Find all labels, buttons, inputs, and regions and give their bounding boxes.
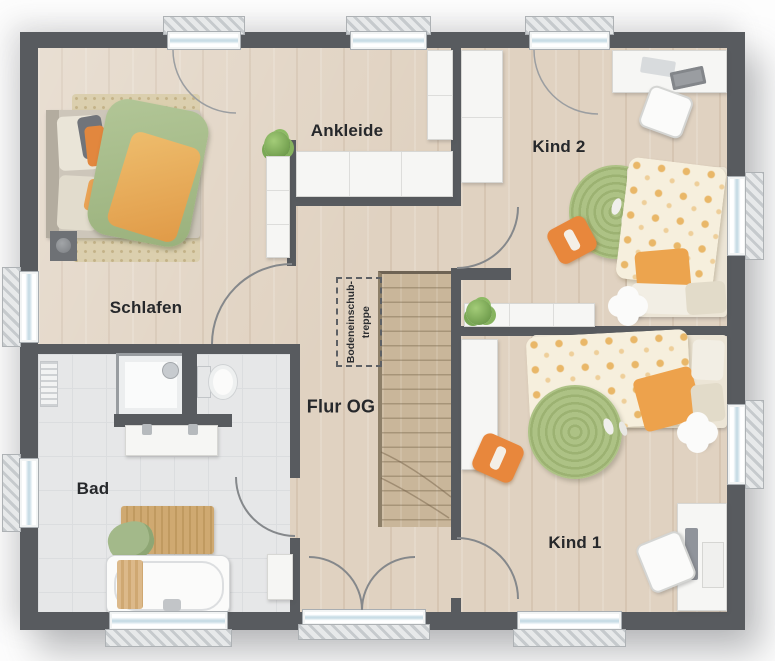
wall-bad-flur-upper <box>290 344 300 478</box>
stool-detail <box>56 238 71 253</box>
schlafen-cabinet <box>266 156 290 258</box>
radiator <box>40 361 58 407</box>
room-label-bad: Bad <box>77 479 110 499</box>
plant <box>466 299 492 325</box>
vanity-double-sink <box>125 425 218 456</box>
room-label-kind2: Kind 2 <box>532 137 585 157</box>
bedside-stool <box>50 231 77 261</box>
room-label-kind1: Kind 1 <box>548 533 601 553</box>
wall-east-divider-mid <box>451 268 461 540</box>
ankleide-wardrobe <box>296 151 453 197</box>
wall-ankleide-flur <box>296 196 453 206</box>
bathtub <box>106 555 230 615</box>
toilet <box>208 364 238 400</box>
kind1-side-table <box>683 418 712 447</box>
shower-head <box>162 362 179 379</box>
staircase <box>378 271 452 527</box>
room-label-flur: Flur OG <box>307 397 375 418</box>
shower-partition-wall <box>182 352 197 423</box>
kind2-side-table <box>614 292 642 320</box>
kind1-pillow <box>691 339 725 381</box>
floor-plan: Bodeneinschub- treppe <box>0 0 775 661</box>
pc-tower <box>702 542 724 588</box>
laptop <box>670 66 707 91</box>
bad-cabinet <box>267 554 293 600</box>
attic-hatch-line2: treppe <box>359 281 374 363</box>
kind2-desk <box>612 50 727 93</box>
kind2-pillow <box>685 281 727 316</box>
doll <box>489 445 508 471</box>
room-label-ankleide: Ankleide <box>311 121 383 141</box>
doll <box>562 228 581 252</box>
faucet <box>142 424 152 435</box>
room-label-schlafen: Schlafen <box>110 298 182 318</box>
attic-hatch-box: Bodeneinschub- treppe <box>336 277 382 367</box>
wall-east-divider-bottom <box>451 598 461 612</box>
attic-hatch-line1: Bodeneinschub- <box>344 281 359 363</box>
kind2-wardrobe <box>461 50 503 183</box>
plant <box>264 131 290 159</box>
bath-faucet <box>163 599 181 611</box>
shower <box>116 353 186 417</box>
bath-caddy <box>117 560 143 609</box>
attic-hatch-label: Bodeneinschub- treppe <box>344 281 374 363</box>
wall-stub-kind2 <box>451 268 511 280</box>
faucet <box>188 424 198 435</box>
ankleide-cabinet <box>427 50 453 140</box>
